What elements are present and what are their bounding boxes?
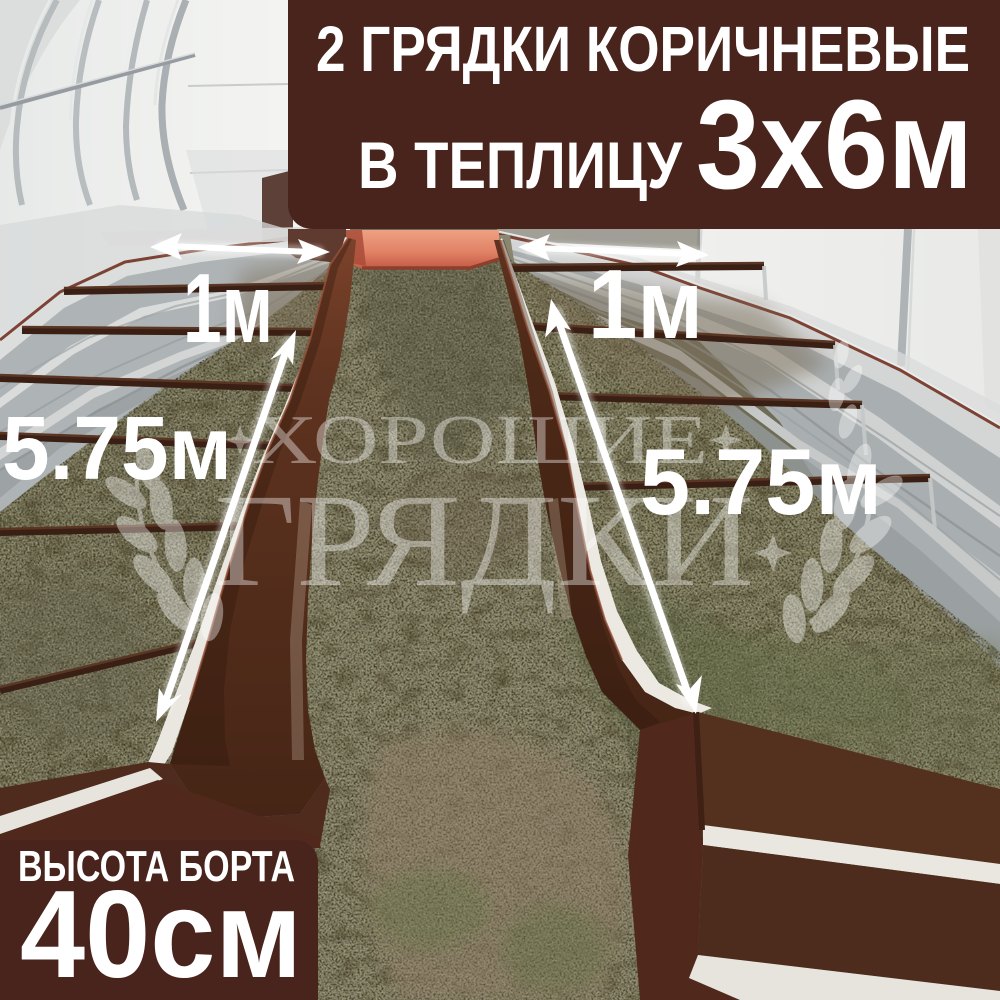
svg-text:5.75м: 5.75м [2,399,232,499]
svg-text:1м: 1м [183,253,273,363]
svg-text:В ТЕПЛИЦУ: В ТЕПЛИЦУ [358,128,683,202]
svg-text:3х6м: 3х6м [696,74,973,215]
svg-text:5.75м: 5.75м [640,429,882,534]
svg-text:40см: 40см [20,866,302,1000]
svg-text:1м: 1м [588,249,703,359]
